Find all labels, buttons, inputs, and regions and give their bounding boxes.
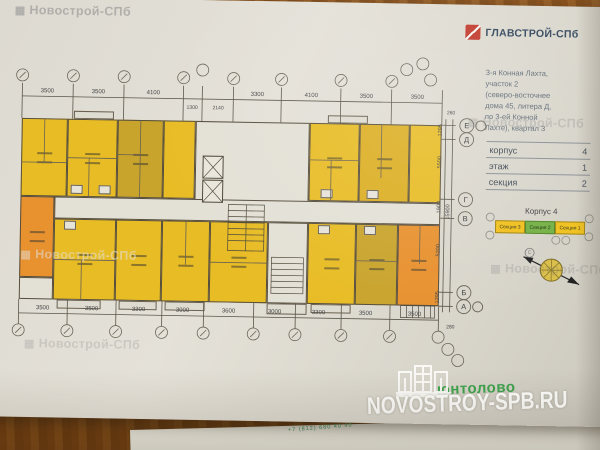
axis-label: Д	[464, 135, 469, 144]
dim-label: 3500	[411, 95, 424, 101]
watermark-text: Новострой-СПб	[29, 3, 131, 19]
dim-label: 3300	[251, 92, 264, 98]
dim-label: 3300	[132, 307, 145, 313]
section-selector-title: Корпус 4	[499, 206, 583, 216]
dim-label: 3600	[222, 308, 235, 314]
dim-label: 3500	[85, 306, 98, 312]
watermark-building-icon: ▦	[15, 5, 26, 17]
section-button-3: Секция 3	[495, 220, 525, 234]
row-value: 2	[582, 178, 587, 188]
section-button-2-selected: Секция 2	[525, 221, 555, 235]
watermark-text: Новострой-СПб	[505, 261, 600, 277]
watermark-text: Новострой-СПб	[482, 115, 584, 131]
watermark-text: Новострой-СПб	[39, 336, 141, 352]
dim-label: 4100	[147, 90, 160, 96]
section-selector: Секция 3 Секция 2 Секция 1	[495, 220, 585, 235]
watermark-text: Новострой-СПб	[35, 247, 137, 263]
watermark: ▦Новострой-СПб	[490, 261, 600, 277]
watermark: ▦Новострой-СПб	[468, 115, 584, 131]
photo-of-floorplan: 3500 3500 4100 1300 2140 3300 4100 3500 …	[0, 0, 600, 450]
dim-label: 1295	[438, 124, 444, 136]
dim-label: 3300	[312, 310, 325, 316]
elevator-shafts	[202, 156, 223, 202]
dim-label: 280	[446, 324, 454, 330]
axis-label: В	[463, 214, 468, 223]
top-dim-ticks	[22, 83, 443, 125]
dim-label: 4100	[305, 93, 318, 99]
grid-bubbles-right	[457, 119, 486, 314]
dim-label: 1900	[436, 201, 442, 213]
watermark-building-icon: ▦	[468, 117, 479, 129]
row-label: этаж	[489, 161, 509, 171]
dim-label: 5500	[437, 156, 443, 168]
stairs-icon	[228, 205, 265, 252]
watermark-building-icon: ▦	[24, 338, 35, 350]
table-row: корпус 4	[486, 142, 590, 160]
table-row: секция 2	[486, 174, 590, 192]
row-value: 1	[582, 162, 587, 172]
dim-label: 5200	[436, 244, 442, 256]
watermark: ▦Новострой-СПб	[24, 336, 140, 352]
watermark: ▦Новострой-СПб	[20, 247, 136, 263]
dim-label: 3000	[268, 309, 281, 315]
dim-label: 3500	[36, 305, 49, 311]
watermark-building-icon: ▦	[20, 249, 31, 261]
watermark-building-icon: ▦	[490, 263, 501, 275]
dim-label: 3000	[176, 308, 189, 314]
table-row: этаж 1	[486, 158, 590, 176]
dim-label: 260	[447, 110, 455, 116]
dim-label: 3500	[359, 311, 372, 317]
dim-label: 3500	[360, 94, 373, 100]
dim-label: 3500	[408, 312, 421, 318]
glavstroy-logo-icon	[465, 25, 480, 40]
info-table: корпус 4 этаж 1 секция 2	[486, 141, 591, 192]
grid-bubbles-top	[17, 51, 437, 88]
interior-partitions	[19, 118, 422, 306]
axis-label: А	[461, 302, 466, 311]
row-label: корпус	[489, 145, 517, 155]
developer-logo: ГЛАВСТРОЙ-СПб	[465, 25, 578, 42]
dim-label: 2140	[212, 105, 223, 111]
dim-label: 3500	[92, 89, 105, 95]
glavstroy-logo-text: ГЛАВСТРОЙ-СПб	[485, 26, 578, 40]
row-label: секция	[489, 177, 518, 187]
dim-label: 1300	[186, 105, 197, 111]
paper-sheet: 3500 3500 4100 1300 2140 3300 4100 3500 …	[0, 0, 600, 428]
compass-north-label: С	[528, 250, 532, 256]
dim-label-total: 15900	[445, 204, 451, 219]
section-button-1: Секция 1	[555, 221, 585, 235]
row-value: 4	[582, 146, 587, 156]
axis-label: Г	[463, 195, 467, 204]
axis-label: Б	[461, 288, 466, 297]
dim-label: 1295	[435, 291, 441, 303]
bottom-dim-ticks	[18, 299, 438, 331]
entrance-stairs-icon	[271, 257, 304, 294]
watermark: ▦Новострой-СПб	[15, 3, 131, 19]
dim-label: 3500	[41, 88, 54, 94]
